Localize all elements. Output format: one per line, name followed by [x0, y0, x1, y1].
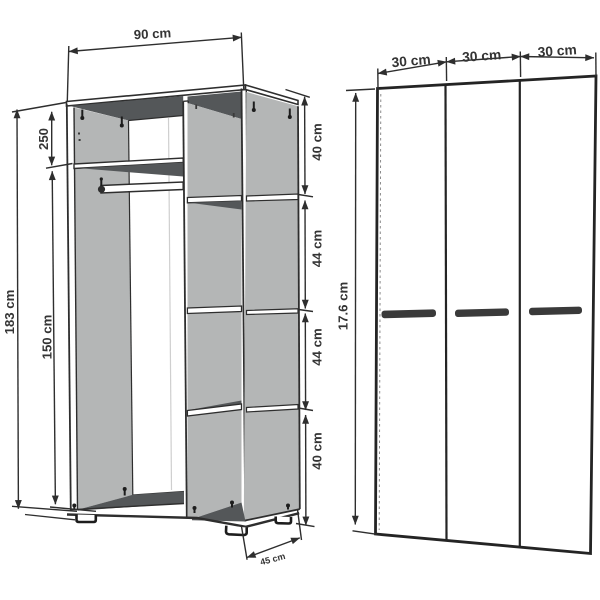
svg-text:250: 250 — [36, 128, 51, 150]
svg-text:44 cm: 44 cm — [310, 328, 325, 365]
svg-text:90 cm: 90 cm — [133, 25, 171, 42]
svg-text:17.6 cm: 17.6 cm — [336, 282, 351, 330]
svg-text:40 cm: 40 cm — [310, 432, 325, 469]
svg-text:40 cm: 40 cm — [310, 123, 325, 160]
svg-text:150 cm: 150 cm — [40, 315, 55, 360]
svg-text:44 cm: 44 cm — [310, 230, 325, 267]
svg-text:45 cm: 45 cm — [259, 551, 286, 567]
svg-text:30 cm: 30 cm — [391, 52, 431, 70]
svg-text:183 cm: 183 cm — [2, 290, 17, 335]
svg-text:30 cm: 30 cm — [537, 42, 577, 60]
svg-text:30 cm: 30 cm — [462, 47, 502, 65]
